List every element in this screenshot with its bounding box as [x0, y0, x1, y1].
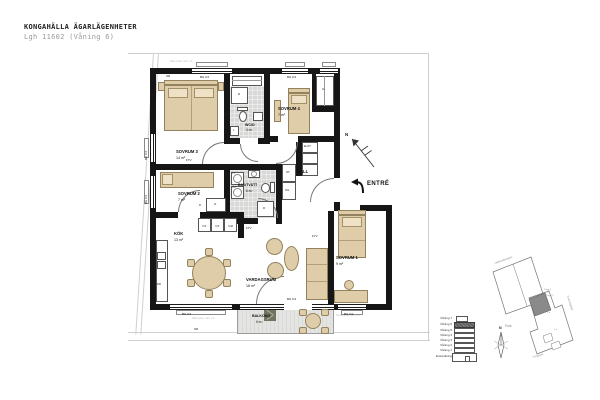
- sink-bowl: [251, 171, 257, 177]
- wardrobe: [316, 76, 334, 106]
- balcony-rail-left: [237, 310, 238, 334]
- floor-label: Våning 4: [426, 334, 452, 337]
- oven-label: U/M: [224, 226, 237, 229]
- room-area-sovrum4: 7 m²: [278, 114, 285, 118]
- balcony-table: [305, 313, 321, 329]
- wall-segment: [232, 68, 282, 74]
- window-sill: [196, 62, 228, 67]
- washer-label: TM: [232, 187, 236, 190]
- dryer-label: TT: [232, 173, 235, 176]
- shower: [257, 201, 274, 217]
- wall-segment: [150, 304, 170, 310]
- desk-chair: [344, 280, 354, 290]
- site-plan: Uddevallavägen Kvartettgatan Triogatan P…: [485, 248, 595, 366]
- dining-chair: [223, 279, 231, 287]
- sofa: [306, 248, 328, 300]
- window: [192, 68, 232, 74]
- pillow: [291, 95, 307, 104]
- wall-segment: [232, 304, 240, 310]
- room-area-badtvatt: 6 m²: [246, 190, 252, 193]
- el-shaft-label: EL/FT: [304, 146, 311, 149]
- linen-cupboard-label: L: [233, 130, 234, 133]
- floor-label: Våning 7: [426, 317, 452, 320]
- window-sill: [285, 62, 305, 67]
- balcony-chair: [299, 309, 307, 316]
- bed-divider-line: [191, 85, 192, 131]
- room-area-sovrum3: 14 m²: [176, 157, 185, 161]
- room-label-hall: HALL: [297, 170, 308, 175]
- dining-chair: [187, 259, 195, 267]
- floor-label: Våning 2: [426, 344, 452, 347]
- window-height-label: BH 0.6: [200, 76, 209, 79]
- window-height-label: BH 0.6: [145, 151, 148, 160]
- shower-label: D: [238, 93, 240, 96]
- north-label: N: [345, 133, 348, 138]
- door-swing: [202, 142, 224, 164]
- room-label-sovrum2: SOVRUM 2: [178, 192, 200, 197]
- wardrobe-label: G: [322, 88, 324, 91]
- dishwasher-label: DM: [157, 284, 161, 287]
- window-height-label: BH 0.6: [145, 195, 148, 204]
- balcony-rail-right: [333, 310, 334, 334]
- entre-label: ENTRÉ: [367, 181, 389, 188]
- elevation-entrance-door: [465, 356, 470, 362]
- floor-label: Entrévåning: [426, 355, 452, 358]
- pillow: [168, 88, 188, 98]
- room-area-balkong: 6 m²: [256, 321, 262, 324]
- balcony-chair: [321, 327, 329, 334]
- wall-segment: [150, 68, 192, 74]
- site-note: 1 tr: [547, 311, 550, 314]
- boundary-line-top: [128, 53, 428, 54]
- coffee-table: [284, 246, 299, 271]
- entre-arrow-icon: [351, 178, 365, 194]
- sofa-cushion-line: [306, 281, 328, 282]
- wall-segment: [156, 164, 282, 170]
- balcony-chair: [299, 327, 307, 334]
- room-label-badtvatt: BAD/TVÄTT: [238, 184, 257, 188]
- pillow: [342, 217, 362, 227]
- wall-segment: [224, 138, 240, 144]
- dining-chair: [205, 248, 213, 256]
- toilet-tank: [270, 182, 275, 193]
- door-swing: [276, 142, 298, 164]
- blanket-line: [338, 240, 366, 241]
- balcony-rail-bottom: [237, 333, 334, 334]
- street-label: Uddevallavägen: [494, 255, 513, 265]
- window: [150, 176, 156, 208]
- door-swing: [310, 178, 334, 202]
- dining-chair: [223, 259, 231, 267]
- room-area-kok: 13 m²: [174, 239, 183, 243]
- door-swing: [240, 144, 258, 162]
- room-label-vardagsrum: VARDAGSRUM: [246, 278, 276, 283]
- ftv-outlet-label: FTV: [246, 227, 252, 230]
- kitchen-sink: [157, 252, 166, 260]
- window: [150, 134, 156, 162]
- site-note: 2 tr: [554, 328, 557, 331]
- nightstand: [218, 82, 224, 91]
- ftv-outlet-label: FTV: [186, 159, 192, 162]
- room-label-kok: KÖK: [174, 232, 183, 237]
- kitchen-counter: [156, 240, 168, 302]
- dining-chair: [187, 279, 195, 287]
- room-area-sovrum1: 9 m²: [336, 263, 343, 267]
- wall-segment: [264, 68, 270, 144]
- window-height-label: BH 0.6: [287, 76, 296, 79]
- sofa-cushion-line: [306, 264, 328, 265]
- linen-cupboard: [230, 126, 239, 136]
- ftv-outlet-label: FTV: [312, 235, 318, 238]
- room-area-vardagsrum: 18 m²: [246, 285, 255, 289]
- pillow: [162, 174, 173, 185]
- sr-label: SR: [194, 328, 198, 331]
- wall-segment: [386, 304, 392, 310]
- sliding-wardrobe-label: SG: [285, 189, 289, 192]
- floor-label: Våning 1: [426, 349, 452, 352]
- window: [320, 68, 338, 74]
- apartment-id: Lgh 11602 (Våning 6): [24, 33, 114, 41]
- boundary-line-bottom2: [128, 340, 430, 341]
- fine-print-note: Tak ovan rum v.1: [170, 60, 193, 63]
- sr-label: SR: [166, 75, 170, 78]
- window-sill: [322, 62, 336, 67]
- wall-segment: [312, 106, 340, 112]
- dining-chair: [205, 290, 213, 298]
- shower-label: D: [263, 207, 265, 210]
- floor-label: Våning 5: [426, 329, 452, 332]
- shaft-box: [302, 153, 318, 164]
- window: [240, 304, 284, 310]
- window-height-label: BH 0.6: [182, 313, 191, 316]
- fridge-label: K/F: [211, 226, 224, 229]
- room-area-sovrum2: 7 m²: [178, 199, 185, 203]
- wall-segment: [238, 212, 244, 238]
- wall-segment: [334, 68, 340, 178]
- site-note: Trapp 1: [544, 288, 552, 291]
- page-title: KONGAHÄLLA ÄGARLÄGENHETER: [24, 23, 137, 31]
- boundary-line-right: [428, 53, 429, 341]
- balcony-chair: [321, 309, 329, 316]
- floor-label: Våning 3: [426, 339, 452, 342]
- room-area-wcd: 4 m²: [246, 129, 252, 132]
- wall-segment: [276, 218, 282, 224]
- room-label-sovrum1: SOVRUM 1: [336, 256, 358, 261]
- toilet: [239, 111, 247, 122]
- fine-print-note: Tak ovan rum v.1: [192, 317, 215, 320]
- street-label: Kvartettgatan: [566, 295, 575, 311]
- wardrobe-divider: [324, 76, 325, 106]
- floor-label: Våning 6: [426, 323, 452, 326]
- wardrobe-label: G: [214, 203, 216, 206]
- dining-table: [192, 256, 226, 290]
- room-label-sovrum3: SOVRUM 3: [176, 150, 198, 155]
- wall-segment: [386, 205, 392, 310]
- window-height-label: BH 0.6: [287, 298, 296, 301]
- vent-shaft-line: [232, 80, 262, 81]
- site-note: Trapp 2: [546, 294, 554, 297]
- desk: [334, 290, 368, 303]
- toilet: [261, 183, 270, 193]
- fridge-label: K/F: [198, 226, 211, 229]
- window-height-label: BH 0.6: [344, 313, 353, 316]
- cleaning-closet-label: ST: [286, 171, 290, 174]
- room-label-balkong: BALKONG: [252, 315, 270, 319]
- wall-segment: [150, 68, 156, 134]
- room-label-sovrum4: SOVRUM 4: [278, 107, 300, 112]
- wall-segment: [366, 304, 386, 310]
- folding-label: Fl: [199, 205, 201, 208]
- vent-shaft: [232, 76, 262, 86]
- park-label: Park: [505, 324, 512, 328]
- kitchen-sink: [157, 261, 166, 269]
- wall-segment: [156, 212, 178, 218]
- sg-label: SG: [226, 112, 229, 116]
- pillow: [194, 88, 214, 98]
- window: [282, 68, 308, 74]
- armchair: [266, 238, 283, 255]
- sink: [253, 112, 263, 121]
